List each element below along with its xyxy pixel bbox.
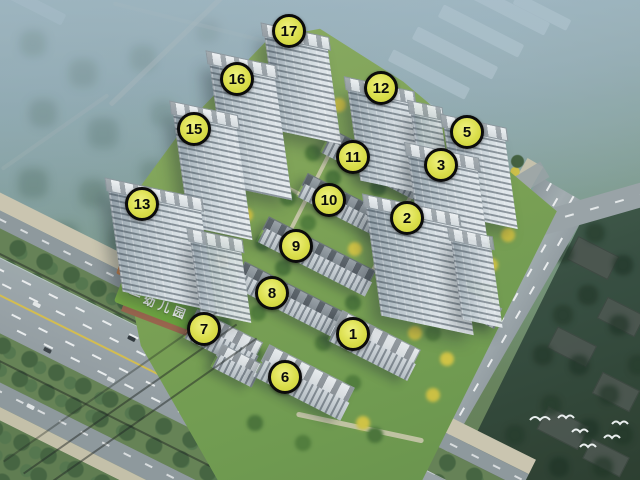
marker-building-8[interactable]: 8 [255, 276, 289, 310]
marker-building-3[interactable]: 3 [424, 148, 458, 182]
marker-building-1[interactable]: 1 [336, 317, 370, 351]
marker-building-10[interactable]: 10 [312, 183, 346, 217]
marker-building-6[interactable]: 6 [268, 360, 302, 394]
marker-building-5[interactable]: 5 [450, 115, 484, 149]
village-roof [567, 236, 620, 280]
marker-building-2[interactable]: 2 [390, 201, 424, 235]
marker-building-15[interactable]: 15 [177, 112, 211, 146]
marker-building-13[interactable]: 13 [125, 187, 159, 221]
aerial-site-plan: 一幼儿园 1 2 3 5 6 7 8 9 10 [0, 0, 640, 480]
estate-trees [0, 0, 6, 6]
marker-building-17[interactable]: 17 [272, 14, 306, 48]
marker-building-12[interactable]: 12 [364, 71, 398, 105]
marker-building-11[interactable]: 11 [336, 140, 370, 174]
birds-flying [500, 398, 640, 468]
marker-building-16[interactable]: 16 [220, 62, 254, 96]
village-roof [597, 297, 640, 337]
village-roof [547, 326, 597, 367]
marker-building-9[interactable]: 9 [279, 229, 313, 263]
marker-building-7[interactable]: 7 [187, 312, 221, 346]
